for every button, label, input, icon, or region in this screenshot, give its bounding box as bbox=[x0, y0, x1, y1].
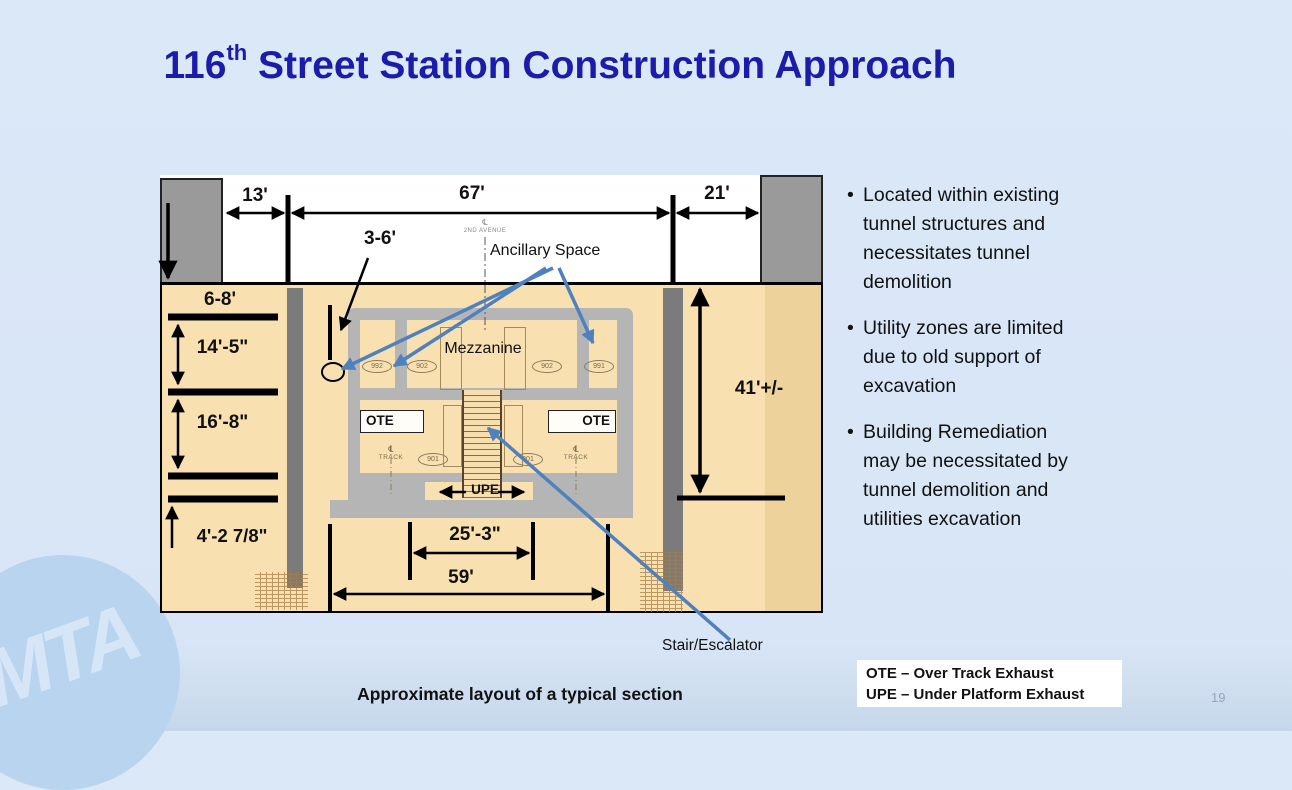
mta-logo: MTA bbox=[0, 555, 180, 790]
dim-14-5: 14'-5" bbox=[185, 337, 260, 359]
dim-21ft: 21' bbox=[682, 183, 752, 205]
ote-box-left: OTE bbox=[360, 410, 424, 433]
escalator-truss-right bbox=[504, 327, 526, 390]
page-number: 19 bbox=[1211, 690, 1225, 705]
ote-left-label: OTE bbox=[366, 413, 394, 428]
dim-6-8ft: 6-8' bbox=[185, 289, 255, 311]
earth-shade-strip bbox=[765, 285, 821, 611]
bullet-list: Located within existing tunnel structure… bbox=[845, 181, 1095, 551]
avenue-word: 2ND AVENUE bbox=[455, 227, 515, 235]
escalator-truss-left bbox=[440, 327, 462, 390]
ote-box-right: OTE bbox=[548, 410, 616, 433]
track-word: TRACK bbox=[366, 454, 416, 462]
bullet-item: Located within existing tunnel structure… bbox=[845, 181, 1081, 297]
mezzanine-label: Mezzanine bbox=[428, 340, 538, 358]
room-oval-902-right: 902 bbox=[532, 360, 562, 373]
centerline-symbol: ℄ bbox=[455, 219, 515, 227]
figure-caption: Approximate layout of a typical section bbox=[260, 684, 780, 705]
avenue-centerline-label: ℄ 2ND AVENUE bbox=[455, 219, 515, 235]
left-pile-footing-hatch bbox=[255, 572, 308, 610]
legend-box: OTE – Over Track Exhaust UPE – Under Pla… bbox=[857, 660, 1122, 707]
ote-right-label: OTE bbox=[582, 413, 610, 428]
centerline-symbol: ℄ bbox=[551, 446, 601, 454]
mezzanine-wall-left bbox=[395, 320, 407, 388]
dim-67ft: 67' bbox=[437, 183, 507, 205]
centerline-symbol: ℄ bbox=[366, 446, 416, 454]
room-oval-992: 992 bbox=[362, 360, 392, 373]
dim-4-2-78: 4'-2 7/8" bbox=[178, 525, 286, 547]
bullet-item: Utility zones are limited due to old sup… bbox=[845, 314, 1081, 401]
right-soe-pile bbox=[663, 288, 683, 591]
section-diagram: OTE OTE 992 902 902 991 901 901 ℄ TRACK … bbox=[160, 175, 823, 613]
track-centerline-label-right: ℄ TRACK bbox=[551, 446, 601, 462]
right-building bbox=[760, 175, 823, 282]
legend-line-ote: OTE – Over Track Exhaust bbox=[866, 663, 1113, 684]
dim-41ft: 41'+/- bbox=[722, 378, 796, 400]
ancillary-space-label: Ancillary Space bbox=[490, 242, 600, 260]
page-title: 116th Street Station Construction Approa… bbox=[140, 40, 980, 88]
slide: { "slide": { "title": {"number": "116", … bbox=[0, 0, 1292, 731]
room-oval-901-left: 901 bbox=[418, 453, 448, 466]
track-centerline-label-left: ℄ TRACK bbox=[366, 446, 416, 462]
dim-59ft: 59' bbox=[416, 567, 506, 589]
room-oval-901-right: 901 bbox=[513, 453, 543, 466]
title-rest: Street Station Construction Approach bbox=[247, 44, 956, 87]
dim-13ft: 13' bbox=[220, 185, 290, 207]
stair-escalator-label: Stair/Escalator bbox=[662, 637, 763, 655]
invert-slab bbox=[330, 500, 625, 518]
upe-label: UPE bbox=[469, 482, 501, 497]
mta-logo-text: MTA bbox=[0, 586, 149, 726]
bullet-text-3: Building Remediation may be necessitated… bbox=[863, 421, 1068, 530]
right-pile-footing-hatch bbox=[640, 552, 683, 612]
dim-25-3: 25'-3" bbox=[430, 524, 520, 546]
room-oval-991: 991 bbox=[584, 360, 614, 373]
bullet-text-1: Located within existing tunnel structure… bbox=[863, 184, 1059, 293]
left-soe-pile bbox=[287, 288, 303, 588]
title-ordinal: th bbox=[226, 40, 247, 65]
bullet-text-2: Utility zones are limited due to old sup… bbox=[863, 317, 1063, 397]
mezzanine-wall-right bbox=[577, 320, 589, 388]
bullet-item: Building Remediation may be necessitated… bbox=[845, 418, 1081, 534]
dim-16-8: 16'-8" bbox=[185, 412, 260, 434]
room-oval-902-left: 902 bbox=[407, 360, 437, 373]
left-building bbox=[160, 178, 223, 282]
track-word: TRACK bbox=[551, 454, 601, 462]
title-number: 116 bbox=[164, 44, 227, 87]
legend-line-upe: UPE – Under Platform Exhaust bbox=[866, 684, 1113, 705]
dim-3-6ft: 3-6' bbox=[350, 228, 410, 250]
